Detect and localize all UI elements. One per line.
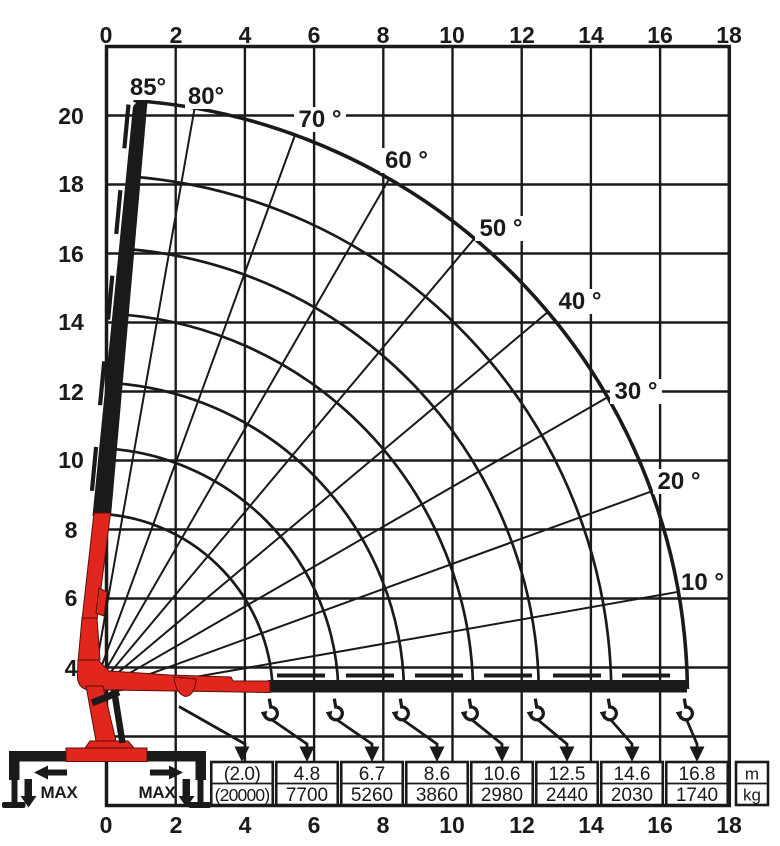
svg-text:10.6: 10.6 xyxy=(484,764,521,785)
svg-text:kg: kg xyxy=(743,786,761,805)
svg-text:2030: 2030 xyxy=(611,785,653,806)
svg-text:12: 12 xyxy=(509,812,535,838)
svg-text:0: 0 xyxy=(100,22,113,48)
svg-text:80°: 80° xyxy=(188,83,224,110)
svg-text:6: 6 xyxy=(308,812,321,838)
svg-text:10: 10 xyxy=(439,22,465,48)
svg-text:10 °: 10 ° xyxy=(681,569,724,596)
svg-text:18: 18 xyxy=(716,812,742,838)
svg-text:2980: 2980 xyxy=(481,785,523,806)
svg-text:4.8: 4.8 xyxy=(294,764,320,785)
svg-text:20 °: 20 ° xyxy=(658,468,701,495)
svg-text:14: 14 xyxy=(58,309,84,335)
svg-text:2440: 2440 xyxy=(546,785,588,806)
svg-text:60 °: 60 ° xyxy=(385,147,428,174)
svg-text:20: 20 xyxy=(58,103,84,129)
svg-text:6.7: 6.7 xyxy=(359,764,385,785)
svg-text:4: 4 xyxy=(65,655,78,681)
svg-text:(2.0): (2.0) xyxy=(224,764,261,785)
svg-text:8.6: 8.6 xyxy=(424,764,450,785)
svg-text:14: 14 xyxy=(578,22,604,48)
svg-text:1740: 1740 xyxy=(676,785,718,806)
svg-text:6: 6 xyxy=(65,585,78,611)
svg-text:16: 16 xyxy=(58,241,84,267)
svg-text:18: 18 xyxy=(58,171,84,197)
svg-text:70 °: 70 ° xyxy=(299,106,342,133)
svg-text:85°: 85° xyxy=(130,74,166,101)
svg-text:30 °: 30 ° xyxy=(615,378,658,405)
svg-text:18: 18 xyxy=(716,22,742,48)
svg-text:16: 16 xyxy=(647,812,673,838)
svg-text:10: 10 xyxy=(439,812,465,838)
svg-text:m: m xyxy=(745,765,759,784)
svg-text:5260: 5260 xyxy=(351,785,393,806)
svg-text:40 °: 40 ° xyxy=(559,288,602,315)
svg-text:10: 10 xyxy=(58,447,84,473)
svg-text:12: 12 xyxy=(509,22,535,48)
svg-text:12: 12 xyxy=(58,379,84,405)
svg-text:0: 0 xyxy=(100,812,113,838)
svg-text:4: 4 xyxy=(239,22,252,48)
svg-text:14.6: 14.6 xyxy=(614,764,651,785)
svg-text:7700: 7700 xyxy=(286,785,328,806)
svg-text:2: 2 xyxy=(170,812,183,838)
svg-text:8: 8 xyxy=(377,22,390,48)
svg-text:3860: 3860 xyxy=(416,785,458,806)
svg-text:14: 14 xyxy=(578,812,604,838)
svg-text:8: 8 xyxy=(377,812,390,838)
svg-text:(20000): (20000) xyxy=(215,785,270,805)
svg-text:2: 2 xyxy=(170,22,183,48)
svg-text:50 °: 50 ° xyxy=(480,215,523,242)
svg-text:MAX: MAX xyxy=(41,783,79,802)
svg-text:MAX: MAX xyxy=(139,783,177,802)
svg-text:8: 8 xyxy=(65,517,78,543)
svg-text:16: 16 xyxy=(647,22,673,48)
svg-text:12.5: 12.5 xyxy=(549,764,586,785)
svg-text:6: 6 xyxy=(308,22,321,48)
svg-text:16.8: 16.8 xyxy=(679,764,716,785)
svg-text:4: 4 xyxy=(239,812,252,838)
